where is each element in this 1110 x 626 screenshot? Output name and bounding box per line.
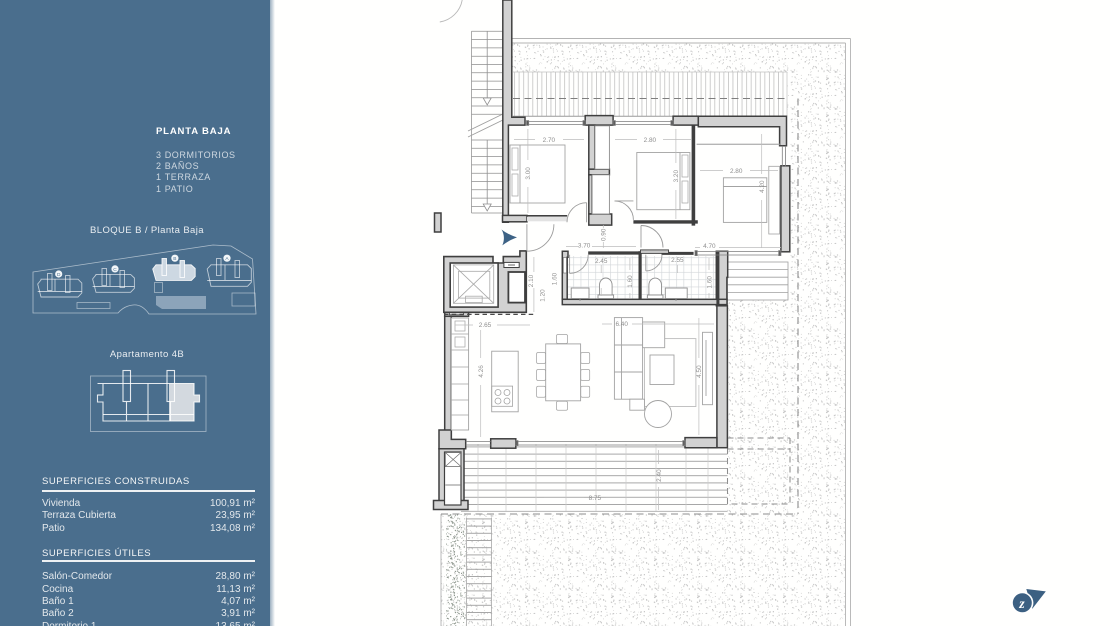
svg-text:4.20: 4.20 (759, 180, 766, 193)
svg-text:2.45: 2.45 (595, 258, 608, 265)
svg-text:8.75: 8.75 (589, 495, 602, 502)
svg-text:2.10: 2.10 (528, 274, 535, 287)
svg-text:3.70: 3.70 (578, 243, 591, 250)
svg-text:2.55: 2.55 (671, 257, 684, 264)
svg-text:2.80: 2.80 (644, 137, 657, 144)
svg-text:2.70: 2.70 (543, 137, 556, 144)
svg-text:1.60: 1.60 (627, 275, 634, 288)
svg-text:z: z (1018, 597, 1025, 612)
svg-text:1.60: 1.60 (552, 272, 559, 285)
svg-text:2.65: 2.65 (479, 322, 492, 329)
svg-text:1.60: 1.60 (706, 276, 713, 289)
svg-text:4.50: 4.50 (696, 365, 703, 378)
svg-text:0.90: 0.90 (601, 228, 608, 241)
svg-text:2.40: 2.40 (656, 469, 663, 482)
svg-text:1.20: 1.20 (540, 289, 547, 302)
svg-text:3.20: 3.20 (673, 170, 680, 183)
svg-text:2.80: 2.80 (730, 168, 743, 175)
svg-text:4.70: 4.70 (703, 243, 716, 250)
svg-text:4.26: 4.26 (478, 365, 485, 378)
svg-text:6.40: 6.40 (615, 321, 628, 328)
svg-text:3.00: 3.00 (525, 167, 532, 180)
